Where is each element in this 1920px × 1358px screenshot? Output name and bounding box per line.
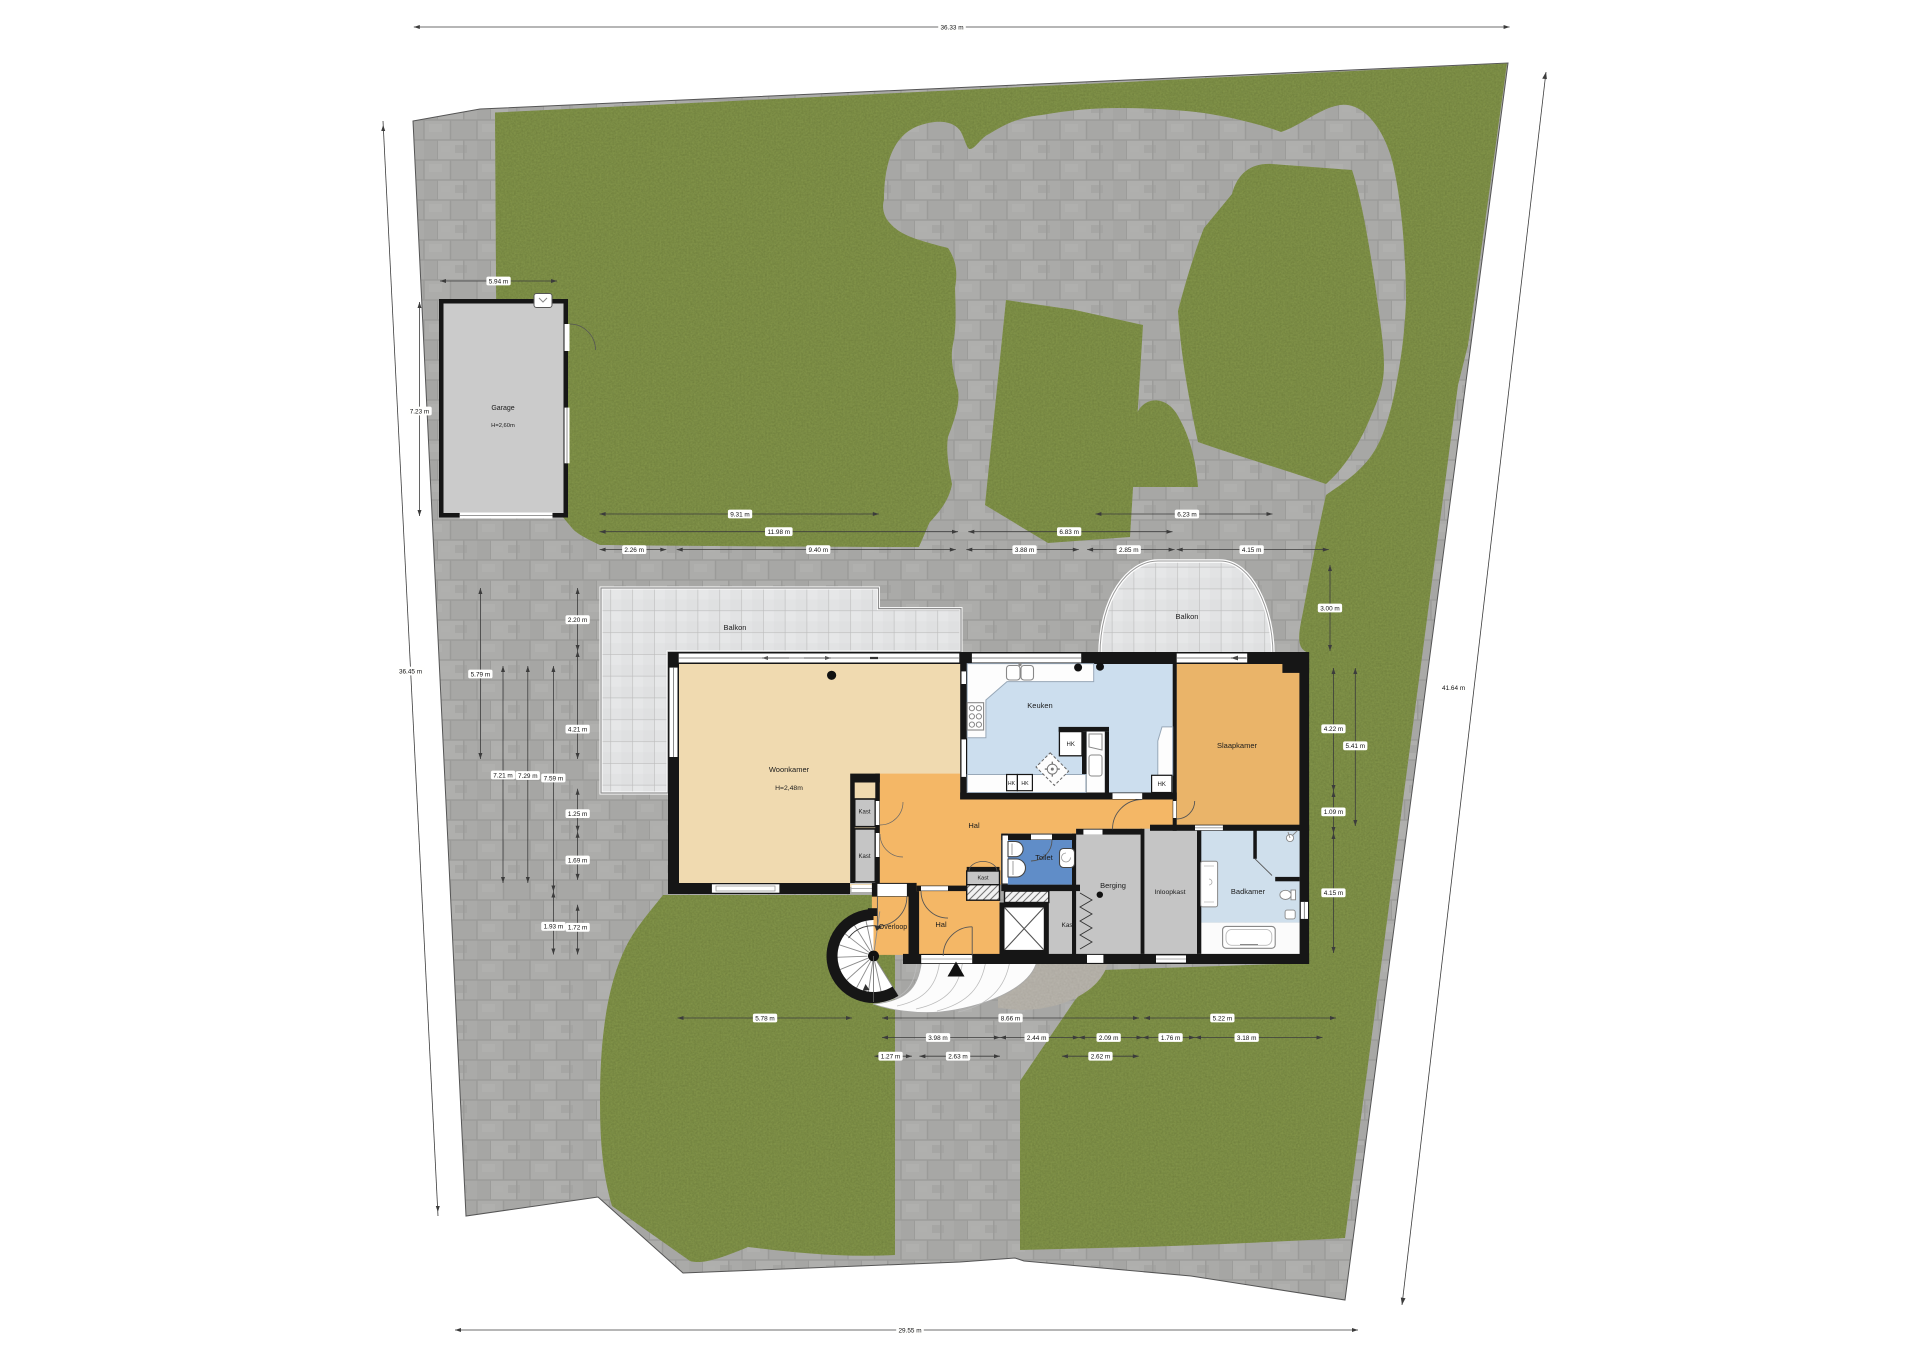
svg-text:H=2,48m: H=2,48m xyxy=(775,785,803,792)
svg-text:3.18 m: 3.18 m xyxy=(1237,1035,1257,1042)
svg-text:Kast: Kast xyxy=(1061,922,1074,929)
svg-text:11.98 m: 11.98 m xyxy=(767,529,790,536)
svg-text:1.25 m: 1.25 m xyxy=(568,811,588,818)
svg-text:1.93 m: 1.93 m xyxy=(544,924,564,931)
svg-text:Kast: Kast xyxy=(977,876,988,882)
svg-text:4.22 m: 4.22 m xyxy=(1324,726,1344,733)
svg-text:Woonkamer: Woonkamer xyxy=(769,765,810,774)
svg-text:Hal: Hal xyxy=(935,920,947,929)
svg-text:1.76 m: 1.76 m xyxy=(1161,1035,1181,1042)
svg-text:4.15 m: 4.15 m xyxy=(1242,547,1262,554)
svg-text:1.27 m: 1.27 m xyxy=(881,1054,901,1061)
svg-text:8.66 m: 8.66 m xyxy=(1001,1015,1021,1022)
svg-text:1.09 m: 1.09 m xyxy=(1324,809,1344,816)
svg-text:36.33 m: 36.33 m xyxy=(940,24,963,31)
svg-text:Hal: Hal xyxy=(968,821,980,830)
svg-text:HK: HK xyxy=(1021,781,1029,787)
svg-text:Toilet: Toilet xyxy=(1035,853,1053,862)
svg-text:5.78 m: 5.78 m xyxy=(755,1015,775,1022)
svg-text:4.15 m: 4.15 m xyxy=(1324,890,1344,897)
svg-text:7.29 m: 7.29 m xyxy=(518,773,538,780)
svg-text:41.64 m: 41.64 m xyxy=(1442,685,1465,692)
svg-text:6.83 m: 6.83 m xyxy=(1059,529,1079,536)
svg-text:HK: HK xyxy=(1008,781,1016,787)
svg-text:Garage: Garage xyxy=(491,405,514,412)
svg-text:2.20 m: 2.20 m xyxy=(568,617,588,624)
svg-text:29.55 m: 29.55 m xyxy=(898,1327,921,1334)
svg-text:5.41 m: 5.41 m xyxy=(1346,743,1366,750)
svg-text:Balkon: Balkon xyxy=(724,623,747,632)
svg-text:36.45 m: 36.45 m xyxy=(399,668,422,675)
svg-text:1.69 m: 1.69 m xyxy=(568,857,588,864)
svg-text:Keuken: Keuken xyxy=(1027,701,1052,710)
svg-text:Balkon: Balkon xyxy=(1176,612,1199,621)
svg-text:2.44 m: 2.44 m xyxy=(1027,1035,1047,1042)
svg-text:2.09 m: 2.09 m xyxy=(1099,1035,1119,1042)
svg-text:2.26 m: 2.26 m xyxy=(624,547,644,554)
svg-text:Kast: Kast xyxy=(858,810,870,816)
svg-text:Slaapkamer: Slaapkamer xyxy=(1217,741,1258,750)
svg-text:H=2,60m: H=2,60m xyxy=(491,423,515,429)
svg-text:3.88 m: 3.88 m xyxy=(1015,547,1035,554)
svg-text:7.21 m: 7.21 m xyxy=(493,772,513,779)
svg-text:4.21 m: 4.21 m xyxy=(568,726,588,733)
svg-text:3.00 m: 3.00 m xyxy=(1320,605,1340,612)
svg-text:5.22 m: 5.22 m xyxy=(1213,1015,1233,1022)
svg-text:2.62 m: 2.62 m xyxy=(1091,1054,1111,1061)
svg-text:5.94 m: 5.94 m xyxy=(489,278,509,285)
svg-text:9.40 m: 9.40 m xyxy=(809,547,829,554)
svg-text:9.31 m: 9.31 m xyxy=(730,511,750,518)
svg-text:2.63 m: 2.63 m xyxy=(948,1054,968,1061)
svg-text:HK: HK xyxy=(1067,742,1075,748)
svg-text:3.98 m: 3.98 m xyxy=(928,1035,948,1042)
svg-text:HK: HK xyxy=(1158,782,1166,788)
svg-text:7.23 m: 7.23 m xyxy=(410,408,430,415)
svg-text:1.72 m: 1.72 m xyxy=(568,925,588,932)
svg-text:Badkamer: Badkamer xyxy=(1231,887,1266,896)
svg-text:Berging: Berging xyxy=(1100,881,1126,890)
svg-text:6.23 m: 6.23 m xyxy=(1177,511,1197,518)
svg-text:7.59 m: 7.59 m xyxy=(544,775,564,782)
svg-text:Overloop: Overloop xyxy=(879,924,908,931)
svg-text:Kast: Kast xyxy=(858,854,870,860)
svg-text:Inloopkast: Inloopkast xyxy=(1155,889,1186,896)
svg-text:2.85 m: 2.85 m xyxy=(1119,547,1139,554)
svg-text:5.79 m: 5.79 m xyxy=(471,671,491,678)
